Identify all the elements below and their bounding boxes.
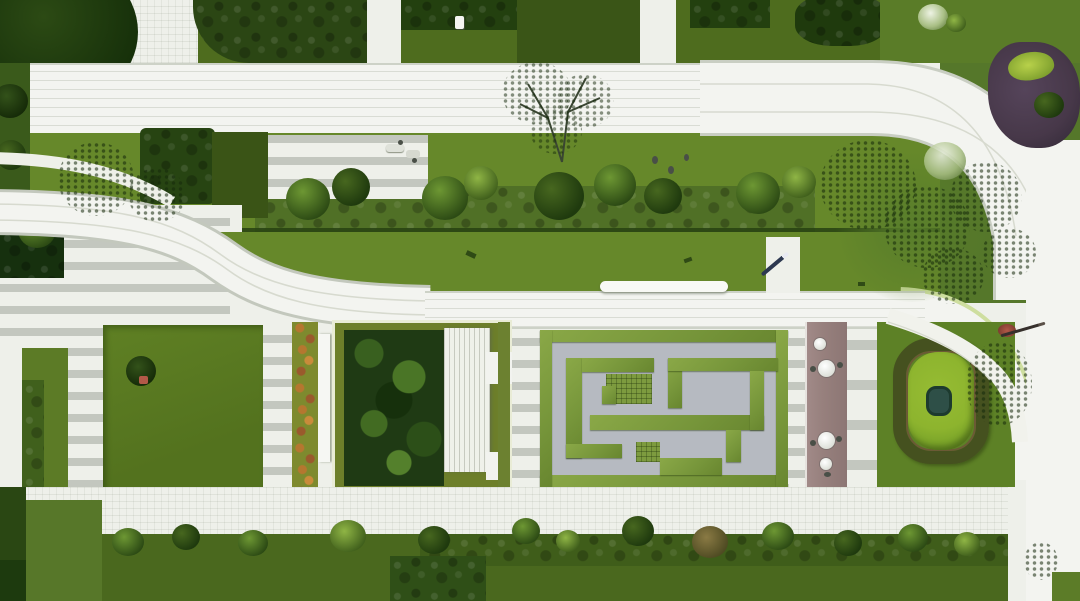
cafe-chair-2 <box>837 362 843 368</box>
cluster-pale-tree <box>924 142 966 180</box>
shrub-top-right <box>946 14 966 32</box>
border-bush-8 <box>594 164 636 206</box>
lawn-square <box>103 325 263 495</box>
maze-wall-m <box>750 371 764 430</box>
maze-wall-p <box>602 386 616 404</box>
furniture-dot-2 <box>412 158 417 163</box>
maze-wall-k <box>660 458 722 475</box>
cafe-table-3 <box>818 432 835 449</box>
cluster-tree-5 <box>982 228 1036 278</box>
border-bush-11 <box>782 166 816 198</box>
cafe-table-2 <box>814 338 826 350</box>
bhedge-shrub-13 <box>954 532 980 556</box>
bottom-hedge-block <box>390 556 486 601</box>
bhedge-shrub-12 <box>898 524 928 552</box>
maze-border-bottom <box>540 475 788 487</box>
maze-border-left <box>540 330 552 487</box>
garden-bench-wall <box>318 334 330 462</box>
bhedge-shrub-6 <box>512 518 540 544</box>
border-bush-3 <box>286 178 330 220</box>
maze-parterre-2 <box>636 442 660 462</box>
top-canopy-block <box>193 0 367 63</box>
maze-wall-b <box>566 444 622 458</box>
maze-wall-j <box>726 430 741 462</box>
bhedge-shrub-9 <box>692 526 728 558</box>
flower-border <box>292 322 318 497</box>
pergola-deck <box>444 328 490 472</box>
cluster-tree-4 <box>922 248 984 304</box>
border-bush-7 <box>534 172 584 220</box>
border-bush-1 <box>58 142 134 216</box>
bhedge-shrub-3 <box>238 530 268 556</box>
top-tree-strip-b <box>690 0 770 28</box>
top-walkway-b <box>640 0 676 66</box>
furniture-bench-1 <box>386 144 404 152</box>
bhedge-shrub-1 <box>112 528 144 556</box>
maze-wall-a <box>566 358 582 458</box>
landscape-render <box>0 0 1080 601</box>
cafe-table-4 <box>820 458 832 470</box>
garden-bed <box>344 330 444 486</box>
border-bush-4 <box>332 168 370 206</box>
planter-bush <box>18 212 56 248</box>
figure-dot-2 <box>668 166 674 174</box>
left-striped-walk <box>68 348 104 506</box>
bhedge-shrub-4 <box>330 520 366 552</box>
bottom-right-green-corner <box>1052 572 1080 601</box>
upper-road <box>0 63 900 137</box>
linear-bench <box>600 281 728 292</box>
stripes-right-of-garden <box>512 338 540 484</box>
top-lawn-dark-panel <box>517 0 640 63</box>
cafe-table-1 <box>818 360 835 377</box>
border-bush-6 <box>464 166 498 200</box>
bhedge-shrub-8 <box>622 516 654 546</box>
blossom-canopy-3 <box>530 108 582 154</box>
bottom-left-green-block <box>26 500 102 601</box>
figure-dot-1 <box>652 156 658 164</box>
white-sculpture <box>455 16 464 29</box>
stripes-right-of-lawn <box>263 335 293 485</box>
bottom-left-deep-corner <box>0 560 26 601</box>
furniture-dot-1 <box>398 140 403 145</box>
border-bush-5 <box>422 176 468 220</box>
bhedge-shrub-7 <box>556 530 580 552</box>
border-bush-9 <box>644 178 682 214</box>
maze-wall-c <box>582 358 654 372</box>
top-walkway-a <box>367 0 401 63</box>
cafe-chair-5 <box>824 472 831 477</box>
cafe-chair-1 <box>810 366 816 372</box>
bhedge-shrub-10 <box>762 522 794 550</box>
purple-bed-shrub <box>1034 92 1064 118</box>
stripes-right-of-deck <box>847 340 877 486</box>
hedge-maze <box>540 330 788 487</box>
figure-dot-3 <box>684 154 689 161</box>
border-bush-10 <box>736 172 780 214</box>
maze-border-top <box>540 330 788 342</box>
mound-pond <box>926 386 952 416</box>
pale-shrub-top <box>918 4 948 30</box>
stripes-right-of-maze <box>788 338 806 484</box>
maze-wall-i <box>590 415 764 430</box>
lawn-tree-pot <box>139 376 148 384</box>
bhedge-shrub-5 <box>418 526 450 554</box>
maze-wall-g <box>668 358 778 371</box>
bhedge-shrub-2 <box>172 524 200 550</box>
cafe-chair-4 <box>836 436 842 442</box>
border-bush-2 <box>128 168 186 222</box>
maze-border-right <box>776 330 788 487</box>
bhedge-shrub-11 <box>834 530 862 556</box>
feature-tree <box>966 342 1032 426</box>
furniture-bench-2 <box>406 150 420 158</box>
bottom-right-shrub <box>1024 542 1058 580</box>
garden-olive-edge <box>498 322 510 498</box>
top-tree-mass <box>795 0 887 46</box>
cafe-chair-3 <box>810 440 816 446</box>
